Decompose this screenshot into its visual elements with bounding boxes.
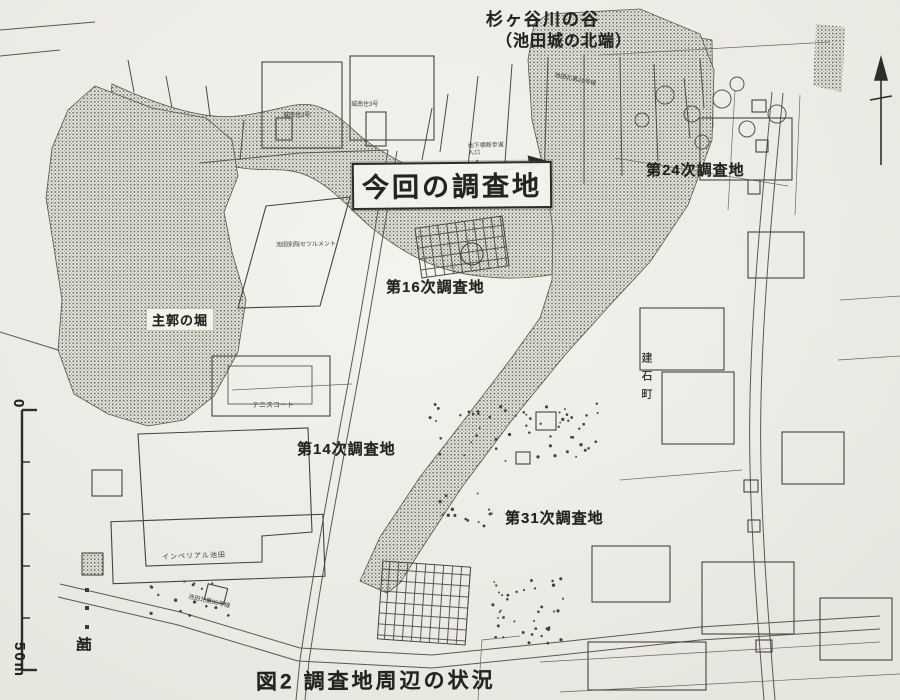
scanned-map-figure: 杉ヶ谷川の谷 （池田城の北端） 今回の調査地 地下横断歩道 入口 第24次調査地…: [0, 0, 900, 700]
scale-50m-label: 50m: [11, 642, 28, 678]
main-moat-label: 主郭の堀: [146, 308, 214, 331]
survey-site-label-24: 第24次調査地: [646, 159, 745, 180]
housing-block2-label: 城南住2号: [283, 110, 310, 119]
scale-bar: [22, 410, 37, 670]
current-site-note-line1: 地下横断歩道: [468, 142, 504, 150]
valley-label-line2: （池田城の北端）: [496, 27, 632, 51]
current-site-note: 地下横断歩道 入口: [468, 142, 504, 157]
scale-zero-label: 0: [10, 399, 27, 408]
legend-moat-label: 堀: [74, 636, 95, 652]
legend-symbols: [82, 553, 103, 629]
valley-hatch-regions: [46, 9, 845, 593]
tennis-court-label: テニスコート: [252, 400, 294, 410]
survey-site-label-16: 第16次調査地: [386, 276, 485, 297]
survey-site-label-14: 第14次調査地: [297, 438, 396, 459]
figure-caption: 図2 調査地周辺の状況: [256, 664, 496, 696]
survey-site-label-31: 第31次調査地: [505, 507, 604, 528]
current-site-label: 今回の調査地: [352, 161, 552, 210]
north-arrow-icon: [870, 58, 892, 165]
housing-block3-label: 城南住3号: [351, 99, 378, 108]
settlement-label: 池田別院セツルメント: [276, 238, 336, 248]
map-artwork: [0, 0, 900, 700]
current-site-note-line2: 入口: [468, 149, 504, 157]
town-name-label: 建石町: [638, 352, 654, 406]
